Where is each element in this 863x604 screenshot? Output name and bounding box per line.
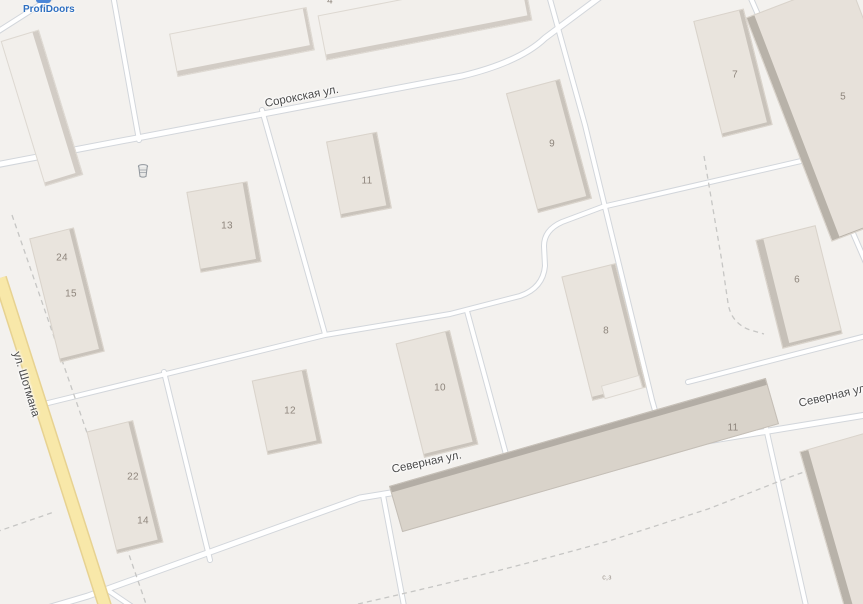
small-structure-label: с,з	[602, 575, 612, 582]
building-number-13: 13	[221, 221, 233, 232]
building-number-24: 24	[56, 253, 68, 264]
poi-label-profidoors[interactable]: ProfiDoors	[23, 4, 75, 15]
building-number-15: 15	[65, 289, 77, 300]
map-canvas[interactable]: 13 24 15 11 9 7 5 8 6 10 12 22 14 11 4 с…	[0, 0, 863, 604]
building-number-22: 22	[127, 472, 139, 483]
building-number-6: 6	[794, 275, 800, 286]
building-number-7: 7	[732, 70, 738, 81]
building-number-8: 8	[603, 326, 609, 337]
building-number-9: 9	[549, 139, 555, 150]
building-number-10: 10	[434, 383, 446, 394]
building-number-12: 12	[284, 406, 296, 417]
building-number-11-south: 11	[728, 423, 739, 434]
building-number-4-partial: 4	[327, 0, 333, 7]
trash-bin-icon[interactable]	[137, 164, 149, 178]
building-number-14: 14	[137, 516, 149, 527]
poi-marker-icon[interactable]	[36, 0, 51, 3]
building-number-11-top: 11	[362, 176, 373, 187]
boundary-dashed-southwest	[0, 512, 54, 532]
building-number-5: 5	[840, 92, 846, 103]
